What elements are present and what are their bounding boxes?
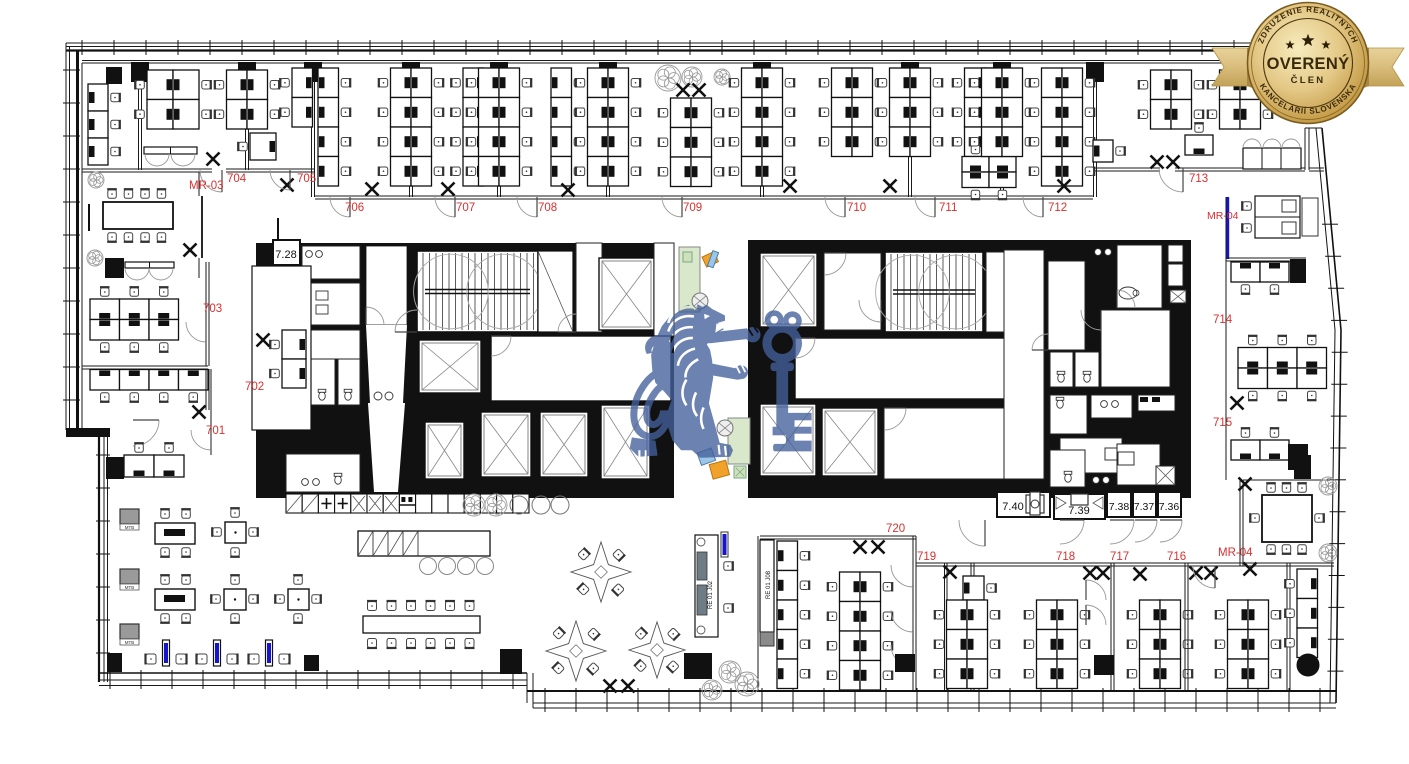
svg-text:718: 718 [1056, 551, 1075, 563]
svg-text:MR-04: MR-04 [1207, 210, 1239, 222]
svg-text:711: 711 [939, 202, 957, 214]
svg-text:708: 708 [538, 202, 557, 214]
svg-text:RE 01 J02: RE 01 J02 [708, 580, 714, 609]
svg-text:716: 716 [1167, 551, 1186, 563]
svg-text:714: 714 [1213, 314, 1233, 326]
svg-text:ČLEN: ČLEN [1291, 74, 1326, 86]
svg-text:7.37: 7.37 [1134, 501, 1155, 513]
svg-text:707: 707 [456, 202, 475, 214]
svg-text:713: 713 [1189, 173, 1208, 185]
svg-text:7.40: 7.40 [1002, 501, 1023, 513]
svg-text:7.39: 7.39 [1068, 505, 1089, 517]
svg-text:MR-03: MR-03 [189, 180, 224, 192]
svg-text:709: 709 [683, 202, 702, 214]
svg-text:703: 703 [203, 303, 222, 315]
svg-text:717: 717 [1110, 551, 1129, 563]
svg-text:RE 01 J08: RE 01 J08 [766, 570, 772, 599]
svg-text:710: 710 [847, 202, 866, 214]
svg-text:702: 702 [245, 381, 264, 393]
svg-text:701: 701 [206, 425, 225, 437]
svg-text:712: 712 [1048, 202, 1067, 214]
svg-text:720: 720 [886, 523, 905, 535]
svg-text:7.28: 7.28 [275, 249, 296, 261]
svg-text:715: 715 [1213, 417, 1232, 429]
svg-text:7.38: 7.38 [1109, 501, 1130, 513]
svg-text:719: 719 [917, 551, 936, 563]
svg-text:704: 704 [227, 173, 247, 185]
svg-text:MTB: MTB [125, 585, 135, 590]
svg-text:706: 706 [345, 202, 364, 214]
svg-text:7.36: 7.36 [1159, 501, 1180, 513]
svg-text:MTB: MTB [125, 525, 135, 530]
svg-text:MR-04: MR-04 [1218, 547, 1253, 559]
svg-text:OVERENÝ: OVERENÝ [1267, 54, 1350, 73]
svg-text:MTB: MTB [125, 640, 135, 645]
svg-text:705: 705 [297, 173, 316, 185]
